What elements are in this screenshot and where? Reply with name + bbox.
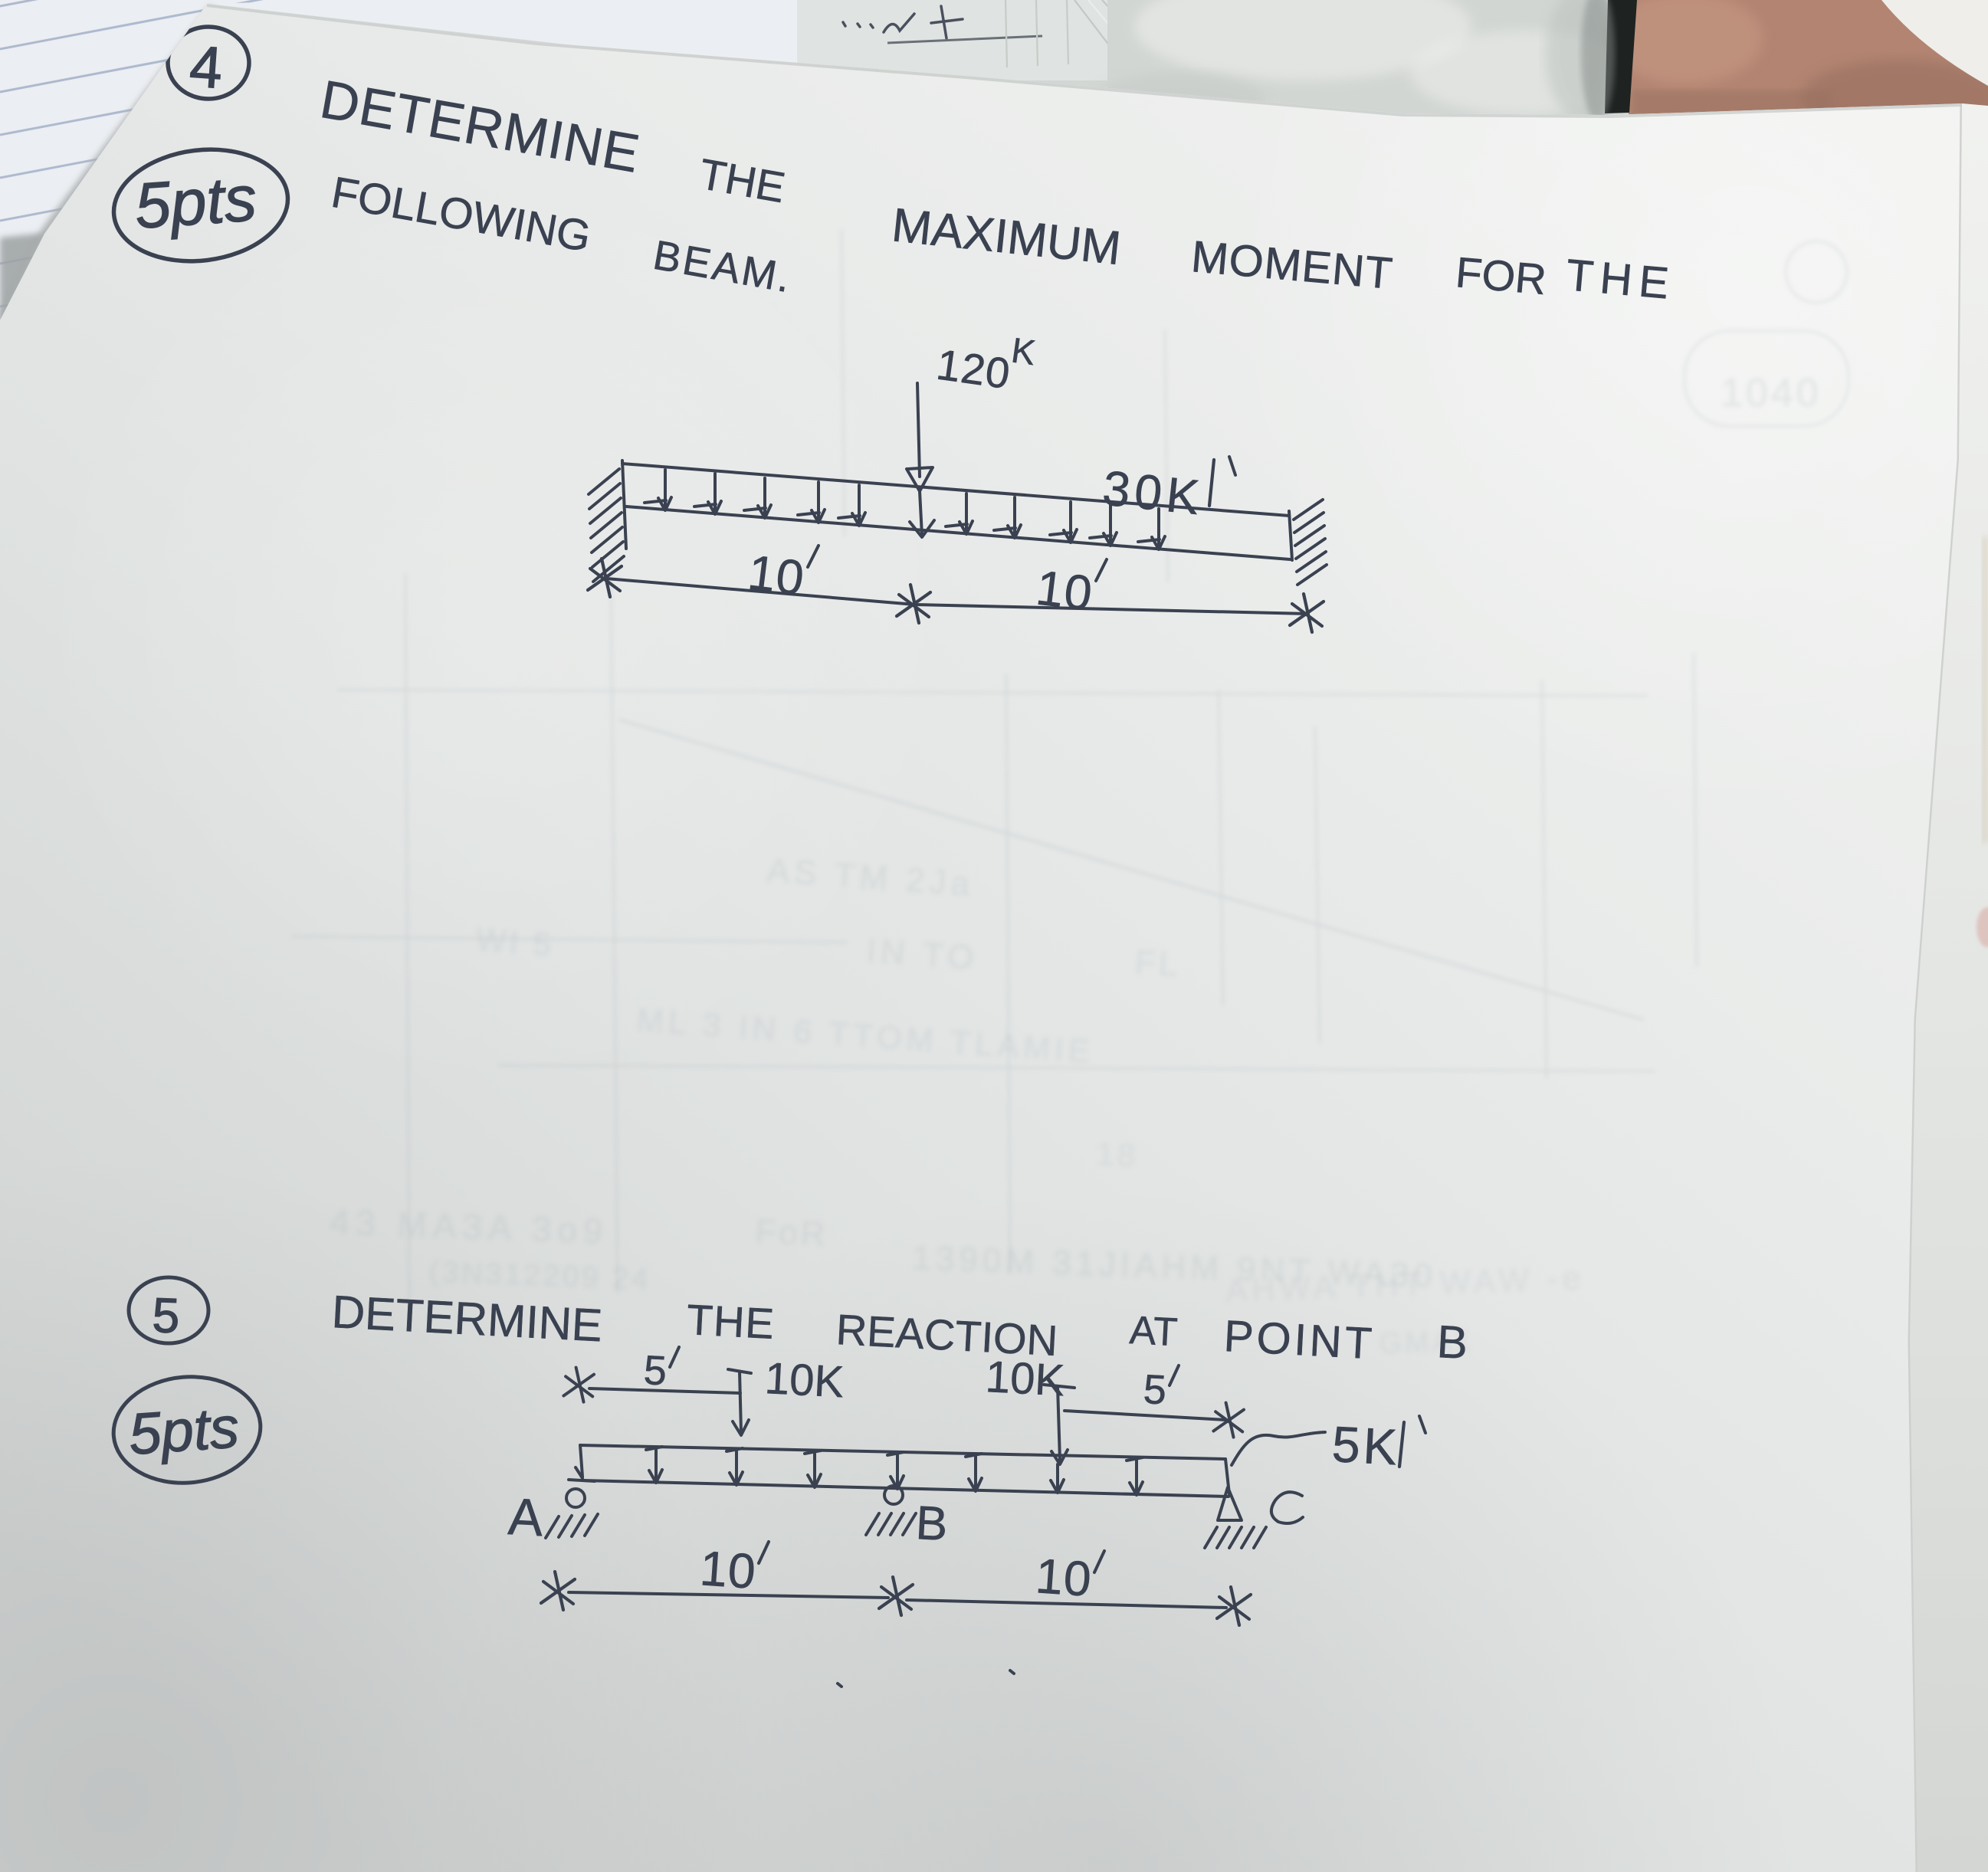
svg-text:B: B xyxy=(1435,1316,1468,1369)
svg-text:120: 120 xyxy=(933,339,1013,398)
svg-text:5pts: 5pts xyxy=(133,162,259,242)
svg-text:A: A xyxy=(507,1487,545,1547)
svg-text:10: 10 xyxy=(1034,1548,1094,1607)
svg-text:5K: 5K xyxy=(1330,1415,1401,1476)
svg-text:THE: THE xyxy=(685,1295,776,1348)
svg-text:10K: 10K xyxy=(763,1353,845,1407)
svg-text:5: 5 xyxy=(642,1347,668,1394)
svg-text:10: 10 xyxy=(1033,559,1095,621)
svg-text:10K: 10K xyxy=(984,1352,1066,1405)
svg-text:FoR: FoR xyxy=(755,1213,829,1253)
svg-text:5: 5 xyxy=(1142,1366,1167,1413)
svg-text:18: 18 xyxy=(1096,1136,1139,1173)
svg-text:5pts: 5pts xyxy=(126,1395,241,1467)
svg-text:B: B xyxy=(914,1497,949,1551)
svg-text:IN TO: IN TO xyxy=(865,932,979,977)
svg-text:30K: 30K xyxy=(1101,460,1207,525)
svg-text:5: 5 xyxy=(152,1287,181,1343)
svg-text:THE: THE xyxy=(1564,250,1678,309)
svg-text:4: 4 xyxy=(188,34,225,101)
svg-text:10: 10 xyxy=(745,544,807,605)
svg-text:WI 5: WI 5 xyxy=(474,921,555,962)
svg-text:10: 10 xyxy=(698,1540,758,1599)
svg-text:1040: 1040 xyxy=(1721,371,1822,415)
svg-text:FOR: FOR xyxy=(1454,248,1548,303)
svg-text:FL: FL xyxy=(1133,943,1182,984)
svg-text:AT: AT xyxy=(1128,1308,1179,1355)
svg-text:POINT: POINT xyxy=(1222,1311,1376,1369)
